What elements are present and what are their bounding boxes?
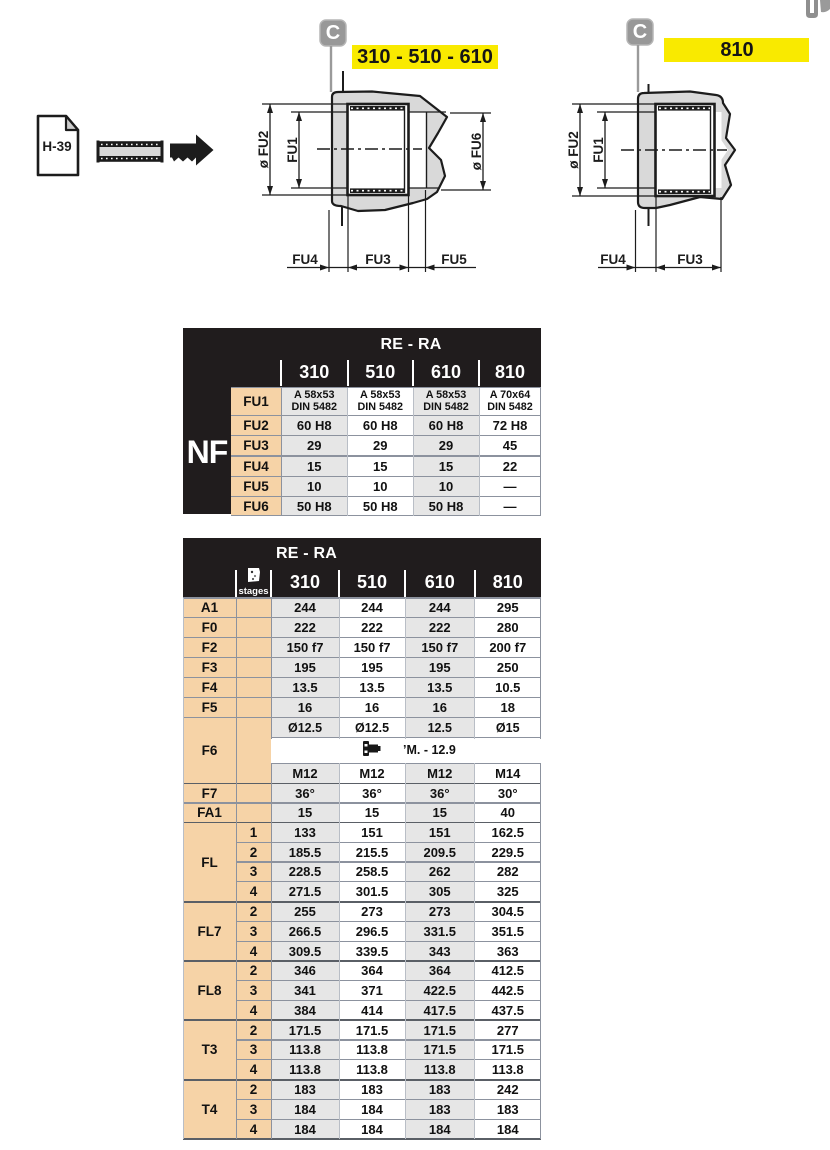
svg-text:ø FU2: ø FU2 [566, 131, 581, 169]
svg-text:FU1: FU1 [591, 137, 606, 163]
svg-text:H-39: H-39 [42, 139, 71, 154]
svg-text:FU3: FU3 [365, 252, 391, 267]
svg-text:FU5: FU5 [441, 252, 467, 267]
svg-text:FU4: FU4 [600, 252, 626, 267]
svg-text:FU1: FU1 [285, 137, 300, 163]
svg-text:FU3: FU3 [677, 252, 703, 267]
svg-text:810: 810 [720, 39, 753, 61]
svg-text:310 - 510 - 610: 310 - 510 - 610 [357, 46, 493, 68]
svg-text:C: C [326, 22, 340, 44]
svg-text:ø FU2: ø FU2 [256, 131, 271, 169]
svg-text:FU4: FU4 [292, 252, 318, 267]
svg-text:C: C [633, 21, 647, 43]
svg-text:ø FU6: ø FU6 [469, 132, 484, 170]
